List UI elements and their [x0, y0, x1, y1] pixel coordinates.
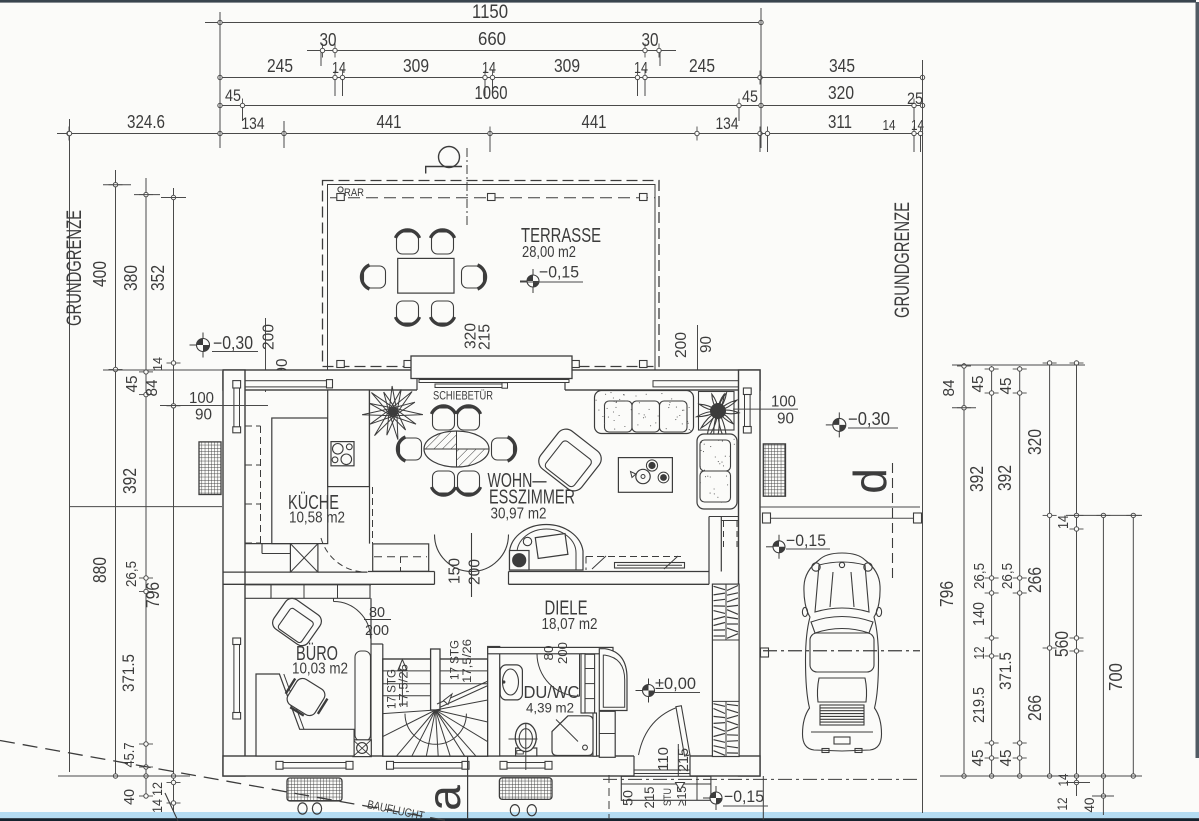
svg-text:200: 200 — [365, 622, 389, 639]
svg-text:12: 12 — [1054, 797, 1070, 810]
svg-text:796: 796 — [143, 582, 163, 608]
svg-text:660: 660 — [478, 29, 506, 49]
svg-text:45: 45 — [970, 749, 987, 766]
svg-text:371.5: 371.5 — [996, 652, 1015, 690]
svg-text:200: 200 — [467, 559, 484, 585]
svg-text:−0,30: −0,30 — [848, 409, 890, 429]
svg-text:80: 80 — [541, 646, 556, 661]
svg-text:371.5: 371.5 — [119, 654, 138, 692]
svg-text:±0,00: ±0,00 — [655, 674, 696, 693]
svg-text:14: 14 — [149, 799, 165, 813]
svg-text:a: a — [418, 785, 470, 811]
svg-text:352: 352 — [148, 265, 168, 291]
svg-text:215: 215 — [675, 748, 692, 772]
svg-text:12: 12 — [971, 647, 988, 660]
svg-text:45: 45 — [998, 749, 1015, 766]
svg-text:392: 392 — [120, 468, 140, 494]
svg-text:26,5: 26,5 — [123, 561, 140, 587]
svg-text:25: 25 — [907, 89, 923, 108]
svg-text:4,39 m2: 4,39 m2 — [526, 700, 574, 716]
svg-text:150: 150 — [447, 558, 464, 584]
svg-text:STU: STU — [662, 788, 674, 806]
svg-text:45: 45 — [970, 375, 987, 392]
svg-text:84: 84 — [941, 379, 958, 396]
svg-text:560: 560 — [1052, 631, 1072, 657]
svg-text:30: 30 — [320, 30, 337, 50]
svg-text:400: 400 — [90, 261, 110, 287]
svg-text:≥15: ≥15 — [674, 786, 689, 806]
svg-text:219.5: 219.5 — [971, 687, 988, 723]
svg-text:10,03 m2: 10,03 m2 — [292, 661, 348, 678]
svg-text:309: 309 — [554, 56, 580, 76]
svg-text:30,97 m2: 30,97 m2 — [491, 506, 547, 523]
svg-text:−0,15: −0,15 — [786, 531, 826, 550]
svg-text:245: 245 — [267, 56, 293, 76]
svg-text:40: 40 — [121, 789, 138, 805]
svg-text:110: 110 — [655, 747, 672, 771]
svg-text:215: 215 — [641, 786, 657, 808]
svg-text:17 STG: 17 STG — [450, 640, 462, 680]
svg-text:14: 14 — [482, 60, 496, 77]
svg-text:880: 880 — [90, 557, 110, 583]
svg-text:14: 14 — [1055, 773, 1071, 786]
svg-text:215: 215 — [477, 324, 494, 350]
svg-text:45: 45 — [124, 375, 141, 392]
svg-text:796: 796 — [937, 581, 957, 607]
svg-text:−0,15: −0,15 — [724, 787, 764, 806]
svg-text:14: 14 — [150, 357, 165, 371]
svg-text:266: 266 — [1025, 695, 1045, 721]
svg-text:100: 100 — [189, 390, 214, 407]
svg-text:441: 441 — [582, 112, 607, 132]
svg-text:−0,15: −0,15 — [539, 263, 579, 282]
svg-text:245: 245 — [689, 56, 715, 76]
svg-text:1060: 1060 — [475, 83, 508, 103]
svg-text:134: 134 — [242, 114, 265, 133]
svg-text:45: 45 — [742, 87, 758, 106]
svg-text:d: d — [844, 468, 896, 494]
svg-text:200: 200 — [555, 642, 570, 664]
svg-text:324.6: 324.6 — [127, 112, 165, 132]
svg-text:RAR: RAR — [344, 187, 364, 199]
svg-text:14: 14 — [332, 60, 346, 77]
svg-text:30: 30 — [642, 30, 659, 50]
svg-text:84: 84 — [144, 379, 161, 396]
svg-text:345: 345 — [829, 56, 855, 76]
svg-text:12: 12 — [149, 782, 165, 796]
svg-text:700: 700 — [1106, 663, 1126, 691]
svg-text:17,5/26: 17,5/26 — [399, 664, 411, 708]
svg-text:45: 45 — [225, 86, 241, 105]
svg-text:26,5: 26,5 — [971, 563, 988, 589]
svg-text:26,5: 26,5 — [999, 563, 1016, 589]
svg-text:90: 90 — [195, 407, 212, 424]
svg-text:200: 200 — [673, 332, 690, 358]
svg-text:40: 40 — [1081, 797, 1097, 812]
svg-text:441: 441 — [377, 112, 402, 132]
svg-text:320: 320 — [828, 83, 854, 103]
svg-text:90: 90 — [777, 411, 794, 428]
svg-text:266: 266 — [1025, 567, 1045, 593]
svg-text:14: 14 — [883, 117, 896, 134]
svg-text:17,5/26: 17,5/26 — [462, 639, 474, 683]
svg-text:45.7: 45.7 — [121, 743, 138, 768]
svg-text:200: 200 — [261, 324, 278, 350]
svg-text:392: 392 — [967, 466, 987, 492]
svg-text:28,00 m2: 28,00 m2 — [522, 244, 576, 261]
svg-text:10,58 m2: 10,58 m2 — [289, 510, 345, 527]
svg-text:14: 14 — [634, 60, 648, 77]
svg-text:134: 134 — [716, 114, 739, 133]
svg-text:18,07 m2: 18,07 m2 — [542, 616, 598, 633]
svg-text:17 STG: 17 STG — [387, 669, 399, 709]
svg-text:309: 309 — [403, 56, 429, 76]
svg-text:320: 320 — [1025, 429, 1045, 455]
svg-text:1150: 1150 — [472, 2, 508, 23]
svg-text:140: 140 — [971, 602, 988, 626]
svg-text:50: 50 — [620, 790, 636, 806]
svg-text:311: 311 — [828, 112, 852, 132]
svg-text:GRUNDGRENZE: GRUNDGRENZE — [63, 210, 86, 326]
svg-text:−0,30: −0,30 — [213, 333, 253, 353]
svg-text:45: 45 — [998, 377, 1015, 394]
svg-text:392: 392 — [995, 465, 1015, 491]
svg-text:90: 90 — [698, 336, 715, 353]
svg-text:GRUNDGRENZE: GRUNDGRENZE — [891, 202, 914, 318]
svg-text:SCHIEBETÜR: SCHIEBETÜR — [433, 391, 493, 403]
svg-text:14: 14 — [1055, 515, 1072, 529]
svg-text:100: 100 — [771, 394, 796, 411]
svg-text:380: 380 — [121, 265, 141, 291]
